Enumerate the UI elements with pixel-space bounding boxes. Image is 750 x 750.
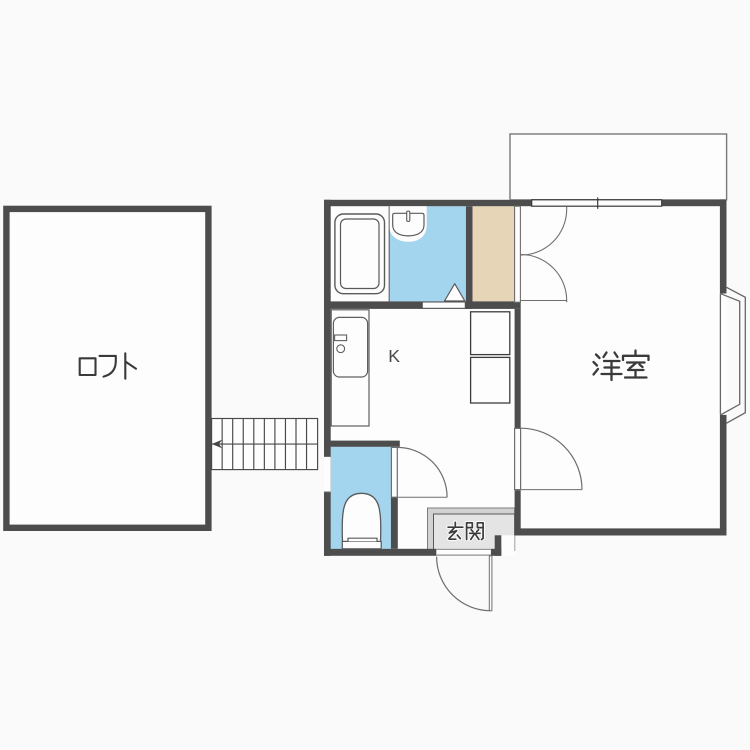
svg-text:K: K [388, 346, 400, 366]
